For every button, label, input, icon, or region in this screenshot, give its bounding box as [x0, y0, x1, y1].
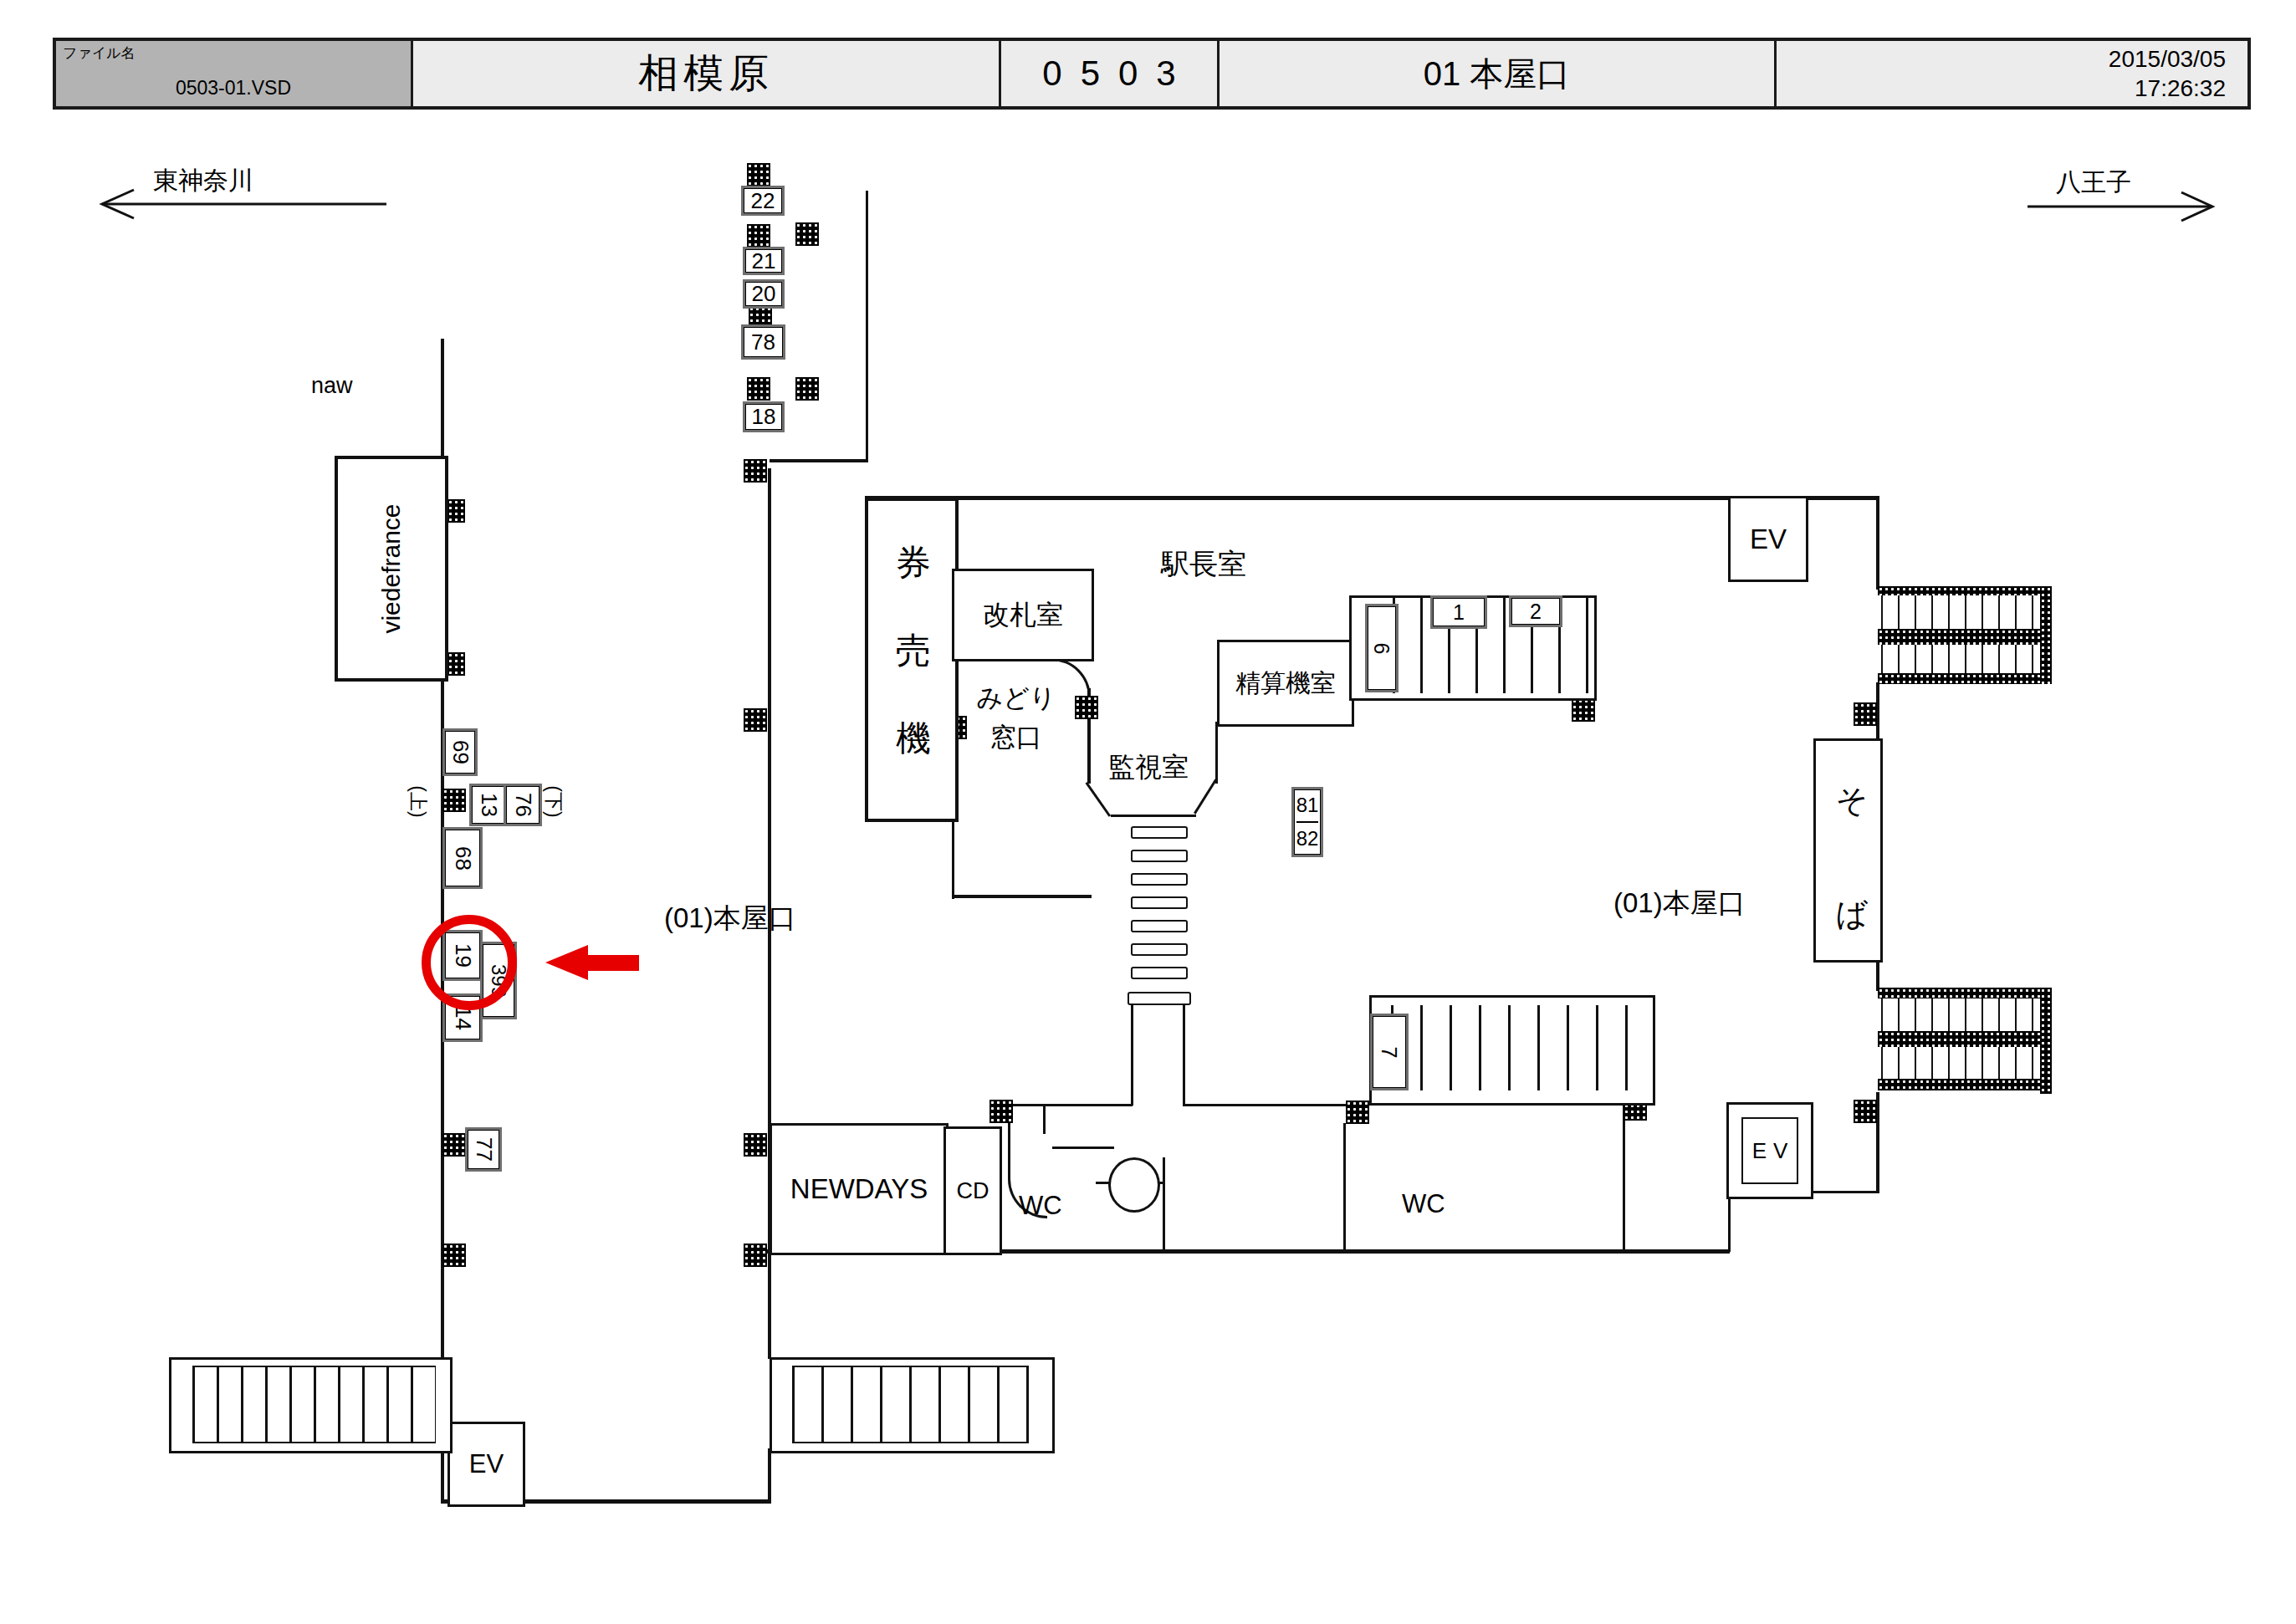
ad-location-69: 69	[442, 728, 478, 776]
pillar-icon	[747, 224, 770, 248]
stairs-right-upper	[1878, 586, 2052, 684]
ad-location-81: 81	[1296, 789, 1319, 821]
stairs-right-lower	[1878, 988, 2052, 1094]
pillar-icon	[442, 789, 466, 812]
store-soba-label: そば	[1830, 765, 1873, 985]
wall-segment	[1052, 1147, 1114, 1149]
floor-plan-canvas: ファイル名 0503-01.VSD 相模原 0503 01 本屋口 2015/0…	[0, 0, 2296, 1624]
escalator-step	[1131, 896, 1188, 909]
elevator-top-right: EV	[1728, 496, 1808, 582]
datetime-cell: 2015/03/05 17:26:32	[1774, 41, 2247, 106]
room-midori-label: みどり 窓口	[966, 679, 1066, 757]
pillar-icon	[442, 1133, 466, 1157]
wall-segment	[952, 815, 954, 899]
wall-segment	[1194, 779, 1217, 814]
ad-location-78: 78	[741, 324, 785, 360]
elevator-bottom-right: EV	[1726, 1102, 1813, 1199]
pillar-icon	[747, 163, 770, 186]
store-newdays: NEWDAYS	[770, 1123, 949, 1255]
store-cd-label: CD	[957, 1178, 989, 1204]
pillar-icon	[744, 1244, 767, 1267]
ad-location-76: 76	[504, 784, 542, 826]
wall-segment	[1086, 782, 1112, 817]
escalator-landing	[1128, 992, 1191, 1005]
wall-segment	[1043, 1106, 1046, 1134]
pillar-icon	[442, 1244, 466, 1267]
wall-segment	[1010, 1104, 1133, 1106]
pillar-icon	[1075, 696, 1098, 719]
file-name: 0503-01.VSD	[56, 77, 411, 100]
store-viedefrance: viedefrance	[335, 456, 448, 682]
wall-segment	[770, 459, 868, 462]
wall-segment	[768, 1448, 771, 1502]
room-wc-right-label: WC	[1402, 1189, 1445, 1219]
time: 17:26:32	[2135, 74, 2226, 103]
wall-segment	[952, 895, 1092, 898]
store-naw-label: naw	[311, 373, 353, 399]
ad-location-82: 82	[1296, 821, 1319, 855]
ad-location-68: 68	[442, 827, 483, 889]
wall-segment	[866, 191, 868, 461]
store-newdays-label: NEWDAYS	[790, 1173, 928, 1205]
wall-segment	[1728, 1192, 1731, 1252]
store-cd: CD	[943, 1126, 1002, 1255]
wall-segment	[1343, 1123, 1346, 1252]
pillar-icon	[1854, 1100, 1877, 1123]
station-code: 0503	[999, 41, 1217, 106]
pillar-icon	[744, 1133, 767, 1157]
escalator-step	[1131, 826, 1188, 839]
escalator-step	[1131, 943, 1188, 956]
escalator-step	[1131, 920, 1188, 932]
store-viedefrance-label: viedefrance	[377, 503, 406, 633]
ad-location-2: 2	[1509, 595, 1562, 627]
room-fare-adjustment-label: 精算機室	[1235, 666, 1336, 701]
highlight-arrow-icon	[545, 945, 588, 980]
ad-location-22: 22	[741, 186, 785, 216]
pillar-icon	[989, 1100, 1013, 1123]
ad-location-1: 1	[1430, 595, 1487, 629]
wall-segment	[1111, 815, 1196, 817]
file-cell: ファイル名 0503-01.VSD	[56, 41, 411, 106]
ad-location-81-82: 81 82	[1291, 787, 1323, 857]
wall-segment	[1808, 1191, 1879, 1193]
escalator-step	[1131, 850, 1188, 862]
highlight-arrow-shaft	[587, 955, 639, 971]
escalator-step	[1131, 967, 1188, 979]
exit-label-left: (01)本屋口	[664, 900, 796, 937]
stairs-lower-center-treads	[1391, 1005, 1631, 1090]
column-circle-icon	[1108, 1157, 1160, 1213]
elevator-bottom-left: EV	[447, 1422, 525, 1507]
room-gate-office-label: 改札室	[983, 597, 1063, 634]
ad-location-7: 7	[1370, 1014, 1409, 1090]
stairs-bottom-middle-treads	[792, 1366, 1029, 1443]
pillar-icon	[795, 377, 819, 401]
exit-label-right: (01)本屋口	[1613, 885, 1746, 922]
station-name: 相模原	[411, 41, 999, 106]
wall-segment	[1163, 1157, 1165, 1252]
ad-location-6: 6	[1365, 604, 1399, 692]
title-block: ファイル名 0503-01.VSD 相模原 0503 01 本屋口 2015/0…	[53, 38, 2251, 110]
right-arrow-icon	[2024, 186, 2229, 227]
date: 2015/03/05	[2109, 44, 2226, 74]
pillar-icon	[1854, 702, 1877, 726]
escalator-shaft-wall	[1183, 1002, 1185, 1106]
wall-segment	[441, 1448, 444, 1502]
pillar-icon	[1572, 698, 1595, 722]
file-label: ファイル名	[63, 43, 136, 63]
elevator-bottom-right-label: EV	[1746, 1138, 1795, 1164]
annotation-down: (下)	[542, 779, 564, 823]
wall-segment	[1876, 496, 1879, 590]
left-arrow-icon	[84, 184, 393, 226]
room-wc-left-label: WC	[1019, 1191, 1062, 1221]
pillar-icon	[795, 222, 819, 246]
ad-location-18: 18	[743, 401, 785, 432]
ad-location-13: 13	[469, 784, 508, 826]
room-ticket-machines-label: 券売機	[890, 517, 937, 780]
elevator-top-right-label: EV	[1750, 523, 1787, 555]
pillar-icon	[744, 459, 767, 483]
pillar-icon	[744, 708, 767, 732]
wall-segment	[1623, 1104, 1625, 1252]
ad-location-77: 77	[465, 1127, 502, 1172]
pillar-icon	[1346, 1101, 1369, 1124]
room-monitoring-label: 監視室	[1108, 749, 1189, 786]
wall-segment	[1215, 722, 1218, 784]
wall-segment	[1183, 1104, 1348, 1106]
escalator-step	[1131, 873, 1188, 886]
room-gate-office: 改札室	[952, 569, 1094, 661]
highlight-circle	[422, 915, 517, 1010]
elevator-bottom-left-label: EV	[469, 1449, 504, 1479]
stairs-bottom-left-treads	[192, 1366, 436, 1443]
annotation-up: (上)	[407, 779, 428, 823]
pillar-icon	[747, 377, 770, 401]
ad-location-20: 20	[743, 279, 785, 309]
escalator-shaft-wall	[1131, 1002, 1133, 1106]
map-title: 01 本屋口	[1217, 41, 1774, 106]
ad-location-21: 21	[743, 247, 785, 275]
room-station-master-label: 駅長室	[1161, 545, 1246, 584]
room-fare-adjustment: 精算機室	[1217, 640, 1354, 727]
